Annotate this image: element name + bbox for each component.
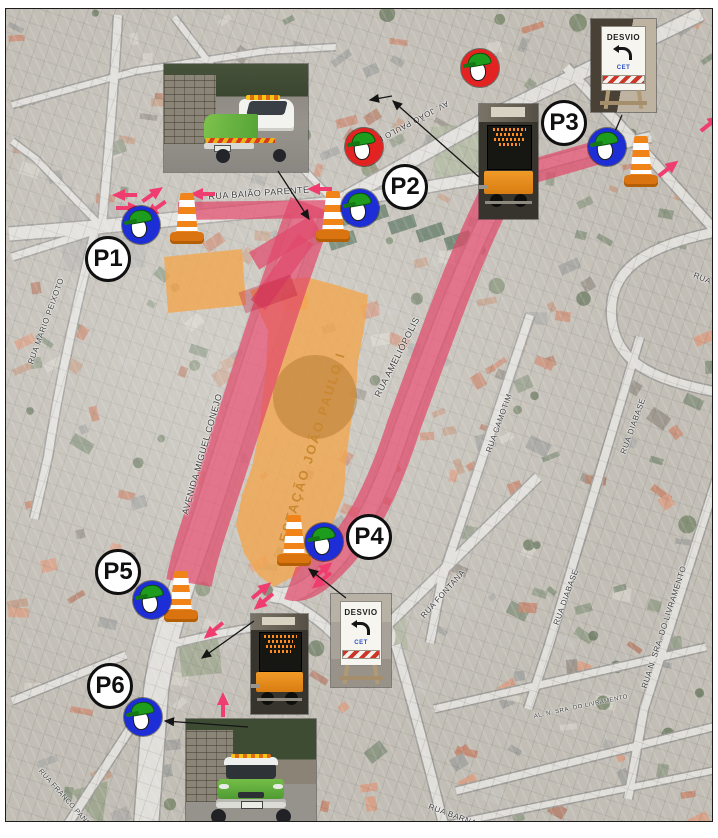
point-label-p5: P5 <box>95 549 141 595</box>
cone-body <box>176 193 198 234</box>
markers-layer: P1P2P3P4P5P6 <box>6 9 713 822</box>
cone-base <box>624 175 658 187</box>
cone-base <box>164 610 198 622</box>
traffic-agent-icon-blue <box>341 189 379 227</box>
point-label-p6: P6 <box>87 663 133 709</box>
traffic-agent-icon-blue <box>122 206 160 244</box>
aerial-map: RUA BAIÃO PARENTEAV. JOÃO PAULO IAVENIDA… <box>5 8 713 822</box>
point-label-p1: P1 <box>85 236 131 282</box>
cone-base <box>170 232 204 244</box>
traffic-agent-icon-red <box>461 49 499 87</box>
traffic-agent-icon-blue <box>124 698 162 736</box>
traffic-agent-icon-blue <box>305 523 343 561</box>
cone-body <box>630 136 652 177</box>
traffic-agent-icon-blue <box>588 128 626 166</box>
cone-body <box>170 571 192 612</box>
traffic-cone-icon <box>624 134 658 188</box>
traffic-agent-icon-blue <box>133 581 171 619</box>
point-label-p4: P4 <box>346 514 392 560</box>
traffic-cone-icon <box>170 191 204 245</box>
plan-sheet: RUA BAIÃO PARENTEAV. JOÃO PAULO IAVENIDA… <box>0 0 718 838</box>
traffic-agent-icon-red <box>345 128 383 166</box>
cone-base <box>277 554 311 566</box>
cone-base <box>316 230 350 242</box>
cone-body <box>283 515 305 556</box>
point-label-p2: P2 <box>382 164 428 210</box>
point-label-p3: P3 <box>541 100 587 146</box>
